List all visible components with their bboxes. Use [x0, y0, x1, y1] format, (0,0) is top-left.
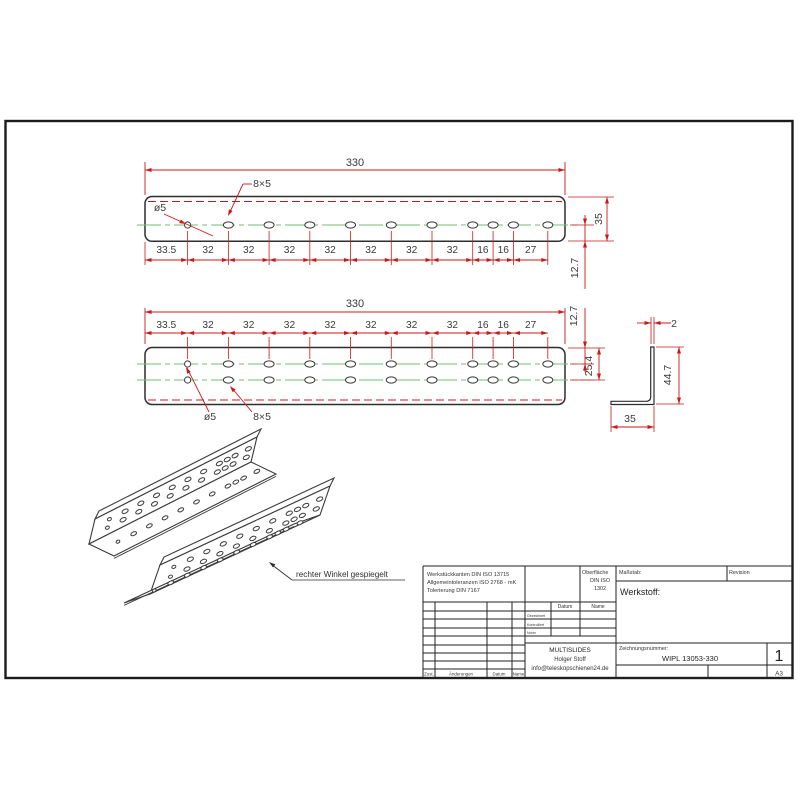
- round-hole-label: ø5: [154, 202, 166, 214]
- hole: [543, 361, 553, 367]
- hole: [468, 361, 478, 367]
- surface-note: 1302: [594, 586, 606, 592]
- paper-size: A3: [775, 671, 783, 678]
- dim-thickness: 2: [671, 318, 677, 330]
- signature-row-label: Norm: [527, 631, 536, 635]
- hole: [346, 377, 356, 383]
- tolerance-note: Tolerierung DIN 7167: [427, 588, 480, 594]
- surface-note: DIN ISO: [590, 578, 610, 584]
- chain-dimension-label: 32: [447, 320, 459, 331]
- hole: [264, 377, 274, 383]
- material-label: Werkstoff:: [620, 587, 660, 597]
- chain-dimension-label: 32: [365, 245, 377, 256]
- hole: [264, 361, 274, 367]
- footer-label: Zust.: [424, 672, 434, 677]
- hole: [346, 222, 356, 228]
- chain-dimension-label: 16: [477, 245, 489, 256]
- hole: [305, 361, 315, 367]
- footer-label: Änderungen: [449, 672, 473, 677]
- scale-label: Maßstab:: [619, 570, 641, 576]
- chain-dimension-label: 32: [284, 320, 296, 331]
- hole: [488, 222, 498, 228]
- company-email: info@teleskopschienen24.de: [531, 666, 609, 672]
- chain-dimension-label: 32: [365, 320, 377, 331]
- sheet-number: 1: [775, 648, 784, 665]
- chain-dimension-label: 27: [525, 320, 537, 331]
- chain-dimension-label: 32: [243, 320, 255, 331]
- hole: [468, 377, 478, 383]
- hole: [488, 361, 498, 367]
- signature-row-label: Gezeichnet: [527, 614, 545, 618]
- dim-width: 35: [593, 213, 605, 225]
- chain-dimension-label: 32: [202, 245, 214, 256]
- web-outline: [145, 348, 565, 405]
- dim-row1-offset: 12.7: [568, 306, 580, 327]
- hole: [543, 222, 553, 228]
- chain-dimension-label: 32: [243, 245, 255, 256]
- hole: [223, 361, 233, 367]
- drawing-sheet: 330 35 12.7 ø5 8×5 330 12.7 25.4 ø5 8×5 …: [0, 0, 800, 800]
- chain-dimension-label: 32: [202, 320, 214, 331]
- hole: [468, 222, 478, 228]
- drawing-number-label: Zeichnungsnummer:: [619, 646, 668, 652]
- hole: [223, 377, 233, 383]
- chain-dimension-label: 27: [525, 245, 537, 256]
- chain-dimension-label: 32: [406, 245, 418, 256]
- hole: [386, 361, 396, 367]
- dim-total-length: 330: [346, 157, 364, 169]
- date-header: Datum: [558, 604, 573, 610]
- footer-label: Datum: [493, 672, 506, 677]
- flange-outline: [145, 197, 565, 242]
- hole: [508, 361, 518, 367]
- chain-dimension-label: 16: [498, 245, 510, 256]
- footer-label: Name: [513, 672, 525, 677]
- slot-hole-label: 8×5: [253, 411, 271, 423]
- surface-note: Oberfläche: [582, 570, 608, 576]
- chain-dimension-label: 16: [477, 320, 489, 331]
- chain-dimension-label: 33.5: [156, 320, 176, 331]
- chain-dimension-label: 32: [284, 245, 296, 256]
- chain-dimension-label: 32: [325, 320, 337, 331]
- hole: [508, 377, 518, 383]
- iso-caption: rechter Winkel gespiegelt: [296, 570, 389, 579]
- revision-label: Revision: [729, 570, 750, 576]
- dim-leg-width: 35: [624, 413, 636, 425]
- hole: [185, 361, 191, 367]
- chain-dimension-label: 32: [447, 245, 459, 256]
- hole: [305, 222, 315, 228]
- round-hole-label: ø5: [204, 411, 216, 423]
- cad-drawing: 330 35 12.7 ø5 8×5 330 12.7 25.4 ø5 8×5 …: [0, 0, 800, 800]
- hole: [346, 361, 356, 367]
- dim-total-length: 330: [346, 298, 364, 310]
- hole: [185, 377, 191, 383]
- drawing-number: WIPL 13053-330: [662, 654, 718, 663]
- chain-dimension-label: 32: [406, 320, 418, 331]
- hole: [223, 222, 233, 228]
- dim-leg-height: 44.7: [662, 365, 674, 386]
- company-name: MULTISLIDES: [549, 647, 590, 654]
- chain-dimension-label: 32: [325, 245, 337, 256]
- chain-dimension-label: 16: [498, 320, 510, 331]
- tolerance-note: Allgemeintoleranzen ISO 2768 - mK: [427, 580, 517, 586]
- chain-dimension-label: 33.5: [156, 245, 176, 256]
- hole: [488, 377, 498, 383]
- hole: [508, 222, 518, 228]
- hole: [427, 361, 437, 367]
- hole: [386, 377, 396, 383]
- hole: [305, 377, 315, 383]
- hole: [264, 222, 274, 228]
- company-person: Holger Stoff: [554, 657, 586, 663]
- hole: [386, 222, 396, 228]
- signature-row-label: Kontrolliert: [527, 623, 544, 627]
- name-header: Name: [591, 604, 605, 610]
- hole: [543, 377, 553, 383]
- tolerance-note: Werkstückkanten DIN ISO 13715: [427, 572, 509, 578]
- dim-hole-offset: 12.7: [569, 258, 581, 279]
- hole: [427, 377, 437, 383]
- hole: [427, 222, 437, 228]
- slot-hole-label: 8×5: [253, 178, 271, 190]
